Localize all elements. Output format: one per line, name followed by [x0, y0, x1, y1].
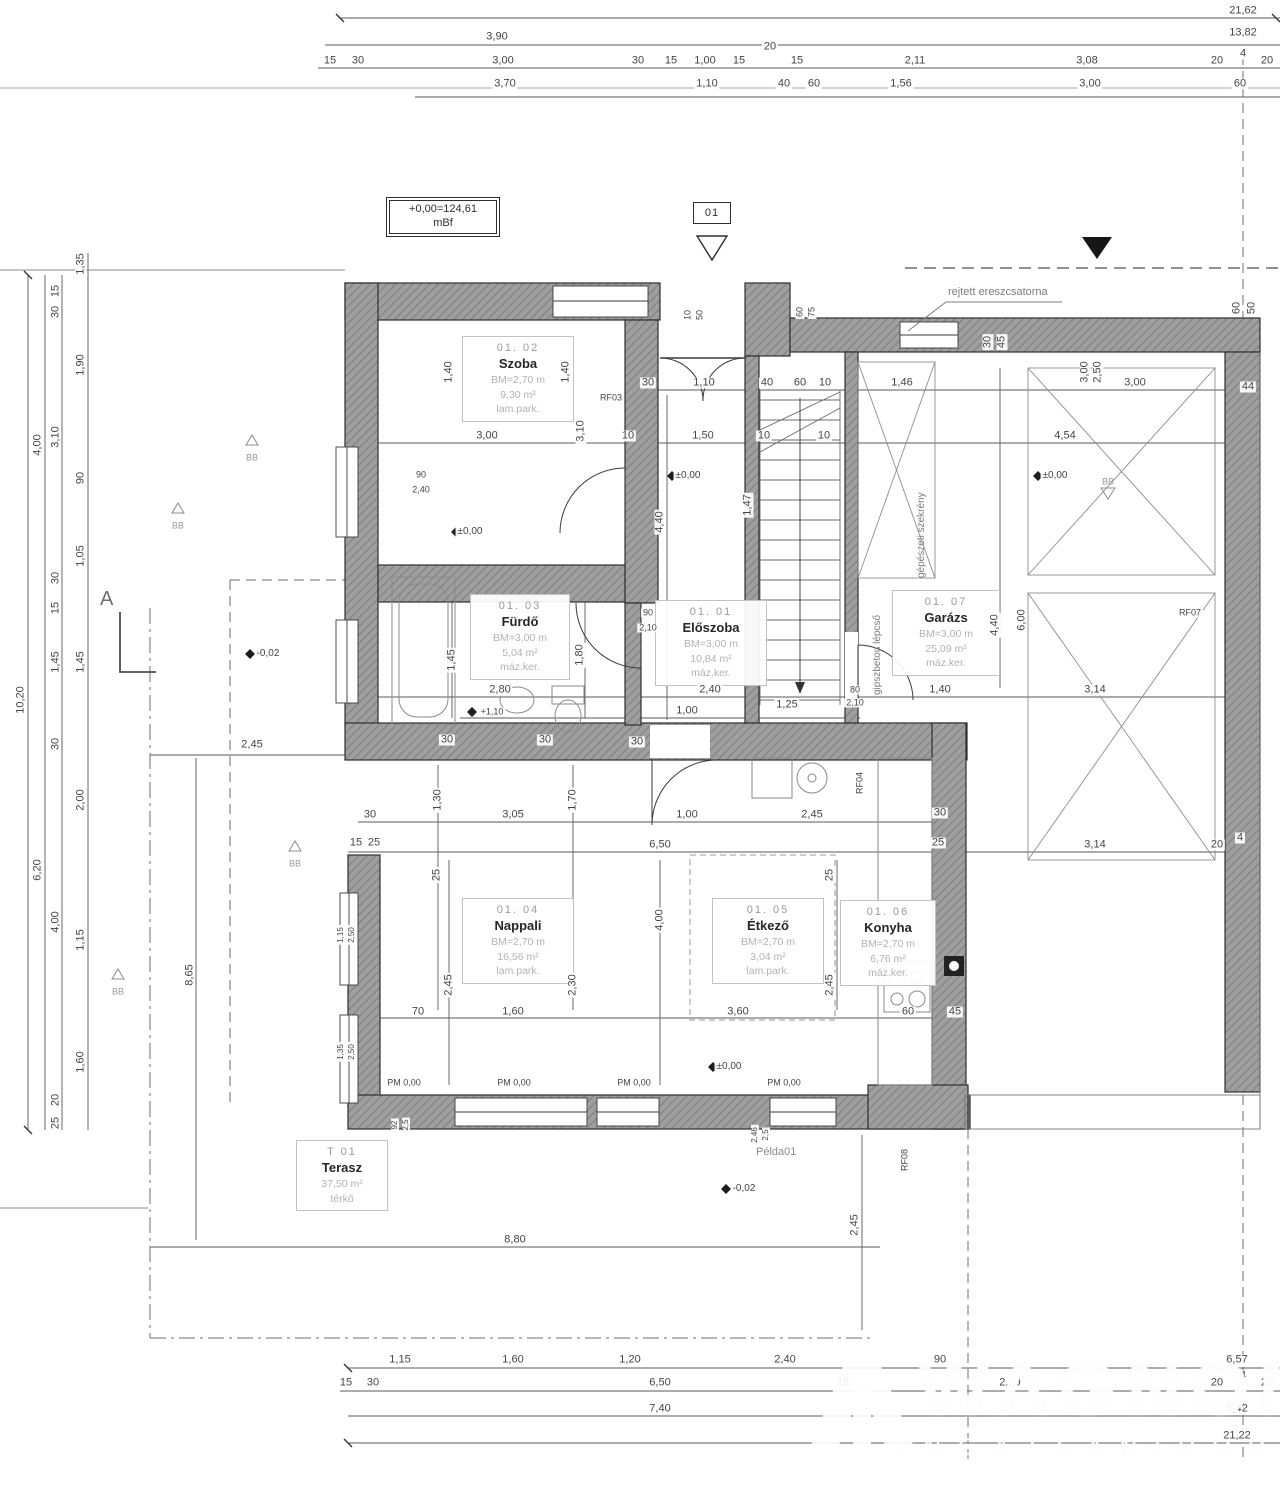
- dimension-label: BB: [287, 860, 303, 869]
- room-number: 01. 01: [660, 606, 762, 618]
- dimension-label: 90: [414, 471, 428, 480]
- room-name: Nappali: [467, 918, 569, 933]
- dimension-label: 60: [1232, 300, 1243, 316]
- section-tag: 01: [693, 202, 731, 224]
- dimension-label: 2,19: [997, 1378, 1022, 1389]
- dimension-label: ±0,00: [674, 471, 703, 481]
- dimension-label: RF04: [856, 770, 865, 796]
- room-name: Garázs: [897, 610, 995, 625]
- dimension-label: 60: [900, 1007, 916, 1018]
- dimension-label: 3,00: [474, 431, 499, 442]
- dimension-label: 60: [792, 378, 808, 389]
- room-area: 10,84 m²: [690, 653, 731, 665]
- room-floor: máz.ker.: [868, 967, 908, 979]
- room-floor: lam.park.: [746, 965, 789, 977]
- dimension-label: PM 0,00: [495, 1079, 533, 1088]
- dimension-label: 10: [816, 431, 832, 442]
- dimension-label: 3,05: [500, 810, 525, 821]
- dimension-label: 1,00: [692, 56, 717, 67]
- room-box-terasz: T 01 Terasz 37,50 m² térkő: [296, 1140, 388, 1211]
- dimension-label: 1,10: [691, 378, 716, 389]
- dimension-label: 15: [51, 283, 62, 299]
- dimension-label: 1,80: [575, 642, 586, 667]
- dimension-label: 1,15: [76, 927, 87, 952]
- dimension-label: 15: [51, 600, 62, 616]
- section-letter: A: [100, 588, 113, 611]
- dimension-label: 60: [806, 79, 822, 90]
- dimension-label: 2,45: [444, 972, 455, 997]
- room-height: BM=2,70 m: [491, 374, 545, 386]
- dimension-label: 25: [930, 838, 946, 849]
- plan-drawing-svg: [0, 0, 1280, 1501]
- room-box-szoba: 01. 02 Szoba BM=2,70 m 9,30 m² lam.park.: [462, 336, 574, 422]
- room-number: 01. 02: [467, 342, 569, 354]
- dimension-label: 20: [762, 42, 778, 53]
- dimension-label: 1,20: [617, 1355, 642, 1366]
- dimension-label: 30: [640, 378, 656, 389]
- dimension-label: 6,57: [1224, 1355, 1249, 1366]
- floor-plan-canvas: 01. 01 Előszoba BM=3,00 m 10,84 m² máz.k…: [0, 0, 1280, 1501]
- room-height: BM=2,70 m: [741, 936, 795, 948]
- dimension-label: 2,5: [762, 1127, 770, 1142]
- dimension-label: 10,20: [16, 684, 27, 716]
- dimension-label: 10: [817, 378, 833, 389]
- dimension-label: BB: [1100, 478, 1116, 487]
- dimension-label: 45: [997, 334, 1008, 350]
- dimension-label: 1,60: [76, 1049, 87, 1074]
- dimension-label: 1,10: [694, 79, 719, 90]
- dimension-label: 3,00: [1122, 378, 1147, 389]
- dimension-label: 4,40: [655, 509, 666, 534]
- room-number: 01. 04: [467, 904, 569, 916]
- dimension-label: 2,10: [637, 624, 659, 633]
- dimension-label: 1,00: [674, 706, 699, 717]
- dimension-label: 21,22: [1221, 1431, 1253, 1442]
- dimension-label: 1,05: [76, 543, 87, 568]
- room-area: 9,30 m²: [500, 389, 536, 401]
- room-number: 01. 07: [897, 596, 995, 608]
- dimension-label: 4,40: [990, 612, 1001, 637]
- dimension-label: +1,10: [479, 708, 506, 717]
- dimension-label: 1,90: [76, 352, 87, 377]
- room-floor: máz.ker.: [691, 667, 731, 679]
- dimension-label: 20: [1209, 1378, 1225, 1389]
- dimension-label: 3,14: [1082, 685, 1107, 696]
- dimension-label: 40: [776, 79, 792, 90]
- dimension-label: 30: [630, 56, 646, 67]
- room-height: BM=3,00 m: [493, 632, 547, 644]
- dimension-label: 1,50: [690, 431, 715, 442]
- sample-note: Példa01: [756, 1146, 796, 1158]
- dimension-label: 3,90: [484, 32, 509, 43]
- dimension-label: 45: [947, 1007, 963, 1018]
- dimension-label: BB: [170, 522, 186, 531]
- dimension-label: 4,54: [1052, 431, 1077, 442]
- dimension-label: 30: [51, 570, 62, 586]
- dimension-label: RF03: [598, 394, 624, 403]
- room-box-garazs: 01. 07 Garázs BM=3,00 m 25,09 m² máz.ker…: [892, 590, 1000, 676]
- dimension-label: 15: [731, 56, 747, 67]
- dimension-label: 50: [696, 308, 705, 322]
- dimension-label: 6,50: [647, 1378, 672, 1389]
- dimension-label: 1,15: [387, 1355, 412, 1366]
- dimension-label: 90: [932, 1355, 948, 1366]
- dimension-label: 30: [350, 56, 366, 67]
- dimension-label: 1,56: [888, 79, 913, 90]
- dimension-label: PM 0,00: [385, 1079, 423, 1088]
- dimension-label: 60: [1232, 79, 1248, 90]
- dimension-label: 20: [1209, 840, 1225, 851]
- room-height: BM=3,00 m: [684, 638, 738, 650]
- dimension-label: 3,08: [1074, 56, 1099, 67]
- dimension-label: 30: [932, 808, 948, 819]
- dimension-label: 2,45: [825, 972, 836, 997]
- room-box-eloszoba: 01. 01 Előszoba BM=3,00 m 10,84 m² máz.k…: [655, 600, 767, 686]
- kitchen-sink: [752, 758, 792, 798]
- dimension-label: 75: [808, 305, 817, 319]
- dimension-label: 15: [322, 56, 338, 67]
- dimension-label: 30: [362, 810, 378, 821]
- dimension-label: 4: [1238, 1371, 1248, 1382]
- dimension-label: 1,70: [568, 787, 579, 812]
- dimension-label: 1,45: [51, 649, 62, 674]
- room-name: Étkező: [717, 918, 819, 933]
- dimension-label: 92: [391, 1119, 399, 1132]
- room-area: 6,76 m²: [870, 953, 906, 965]
- dimension-label: 60: [796, 305, 805, 319]
- room-name: Előszoba: [660, 620, 762, 635]
- dimension-label: 20: [1259, 1378, 1275, 1389]
- toilet: [552, 686, 584, 704]
- dimension-label: 4: [1238, 49, 1248, 60]
- room-box-etkezo: 01. 05 Étkező BM=2,70 m 3,04 m² lam.park…: [712, 898, 824, 984]
- stairs-note: gipszbeton lépcső: [872, 615, 883, 695]
- dimension-label: 21,62: [1227, 6, 1259, 17]
- room-name: Szoba: [467, 356, 569, 371]
- dimension-label: 3,00: [490, 56, 515, 67]
- dimension-label: 2,40: [772, 1355, 797, 1366]
- dimension-label: 40: [759, 378, 775, 389]
- room-box-konyha: 01. 06 Konyha BM=2,70 m 6,76 m² máz.ker.: [840, 900, 936, 986]
- dimension-label: 8,80: [502, 1235, 527, 1246]
- dimension-label: 25: [51, 1115, 62, 1131]
- dimension-label: 30: [537, 735, 553, 746]
- dimension-label: -0,02: [255, 649, 282, 659]
- dimension-label: 1,40: [444, 359, 455, 384]
- dimension-label: 2,5: [402, 1117, 410, 1132]
- level-unit: mBf: [433, 217, 453, 229]
- dimension-label: 2,45: [239, 740, 264, 751]
- dimension-label: 1,35: [76, 251, 87, 276]
- room-name: Fürdő: [475, 614, 565, 629]
- dimension-label: 1,35: [337, 1042, 345, 1062]
- section-marker-triangle: [697, 236, 727, 260]
- dimension-label: PM 0,00: [615, 1079, 653, 1088]
- dimension-label: 2,10: [844, 699, 866, 708]
- dimension-label: 10: [756, 431, 772, 442]
- dimension-label: 90: [641, 609, 655, 618]
- dimension-label: 6,42: [1224, 1404, 1249, 1415]
- dimension-label: 2,40: [697, 685, 722, 696]
- dimension-label: 6,00: [1017, 607, 1028, 632]
- dimension-label: 8,65: [185, 962, 196, 987]
- room-area: 37,50 m²: [321, 1178, 362, 1190]
- room-floor: máz.ker.: [500, 661, 540, 673]
- dimension-label: 15: [338, 1378, 354, 1389]
- dimension-label: 1,60: [500, 1007, 525, 1018]
- dimension-label: 30: [983, 334, 994, 350]
- dimension-label: 7,40: [647, 1404, 672, 1415]
- dimension-label: 44: [1240, 382, 1256, 393]
- room-number: T 01: [301, 1146, 383, 1158]
- dimension-label: 6,20: [33, 857, 44, 882]
- dimension-label: 25: [366, 838, 382, 849]
- dimension-label: 2,11: [903, 56, 928, 67]
- dimension-label: PM 0,00: [765, 1079, 803, 1088]
- room-floor: lam.park.: [496, 965, 539, 977]
- dimension-label: RF07: [1177, 609, 1203, 618]
- dimension-label: 80: [848, 686, 862, 695]
- room-height: BM=2,70 m: [491, 936, 545, 948]
- dimension-label: 13,82: [1227, 28, 1259, 39]
- dimension-label: 50: [1247, 300, 1258, 316]
- room-area: 25,09 m²: [925, 643, 966, 655]
- dimension-label: 15: [835, 1378, 851, 1389]
- dimension-label: 4: [1235, 833, 1245, 844]
- room-area: 16,56 m²: [497, 951, 538, 963]
- dimension-label: 1,00: [674, 810, 699, 821]
- room-box-furdo: 01. 03 Fürdő BM=3,00 m 5,04 m² máz.ker.: [470, 594, 570, 680]
- dimension-label: 1,45: [447, 647, 458, 672]
- dimension-label: 20: [1259, 56, 1275, 67]
- dimension-label: 3,14: [1082, 840, 1107, 851]
- room-area: 3,04 m²: [750, 951, 786, 963]
- dimension-label: 1,46: [889, 378, 914, 389]
- dimension-label: 1,25: [774, 700, 799, 711]
- dimension-label: 15: [663, 56, 679, 67]
- dimension-label: 2,45: [850, 1212, 861, 1237]
- room-box-nappali: 01. 04 Nappali BM=2,70 m 16,56 m² lam.pa…: [462, 898, 574, 984]
- dimension-label: 30: [51, 736, 62, 752]
- dimension-label: BB: [244, 454, 260, 463]
- dimension-label: 4,00: [655, 907, 666, 932]
- dimension-label: 1,15: [337, 925, 345, 945]
- dimension-label: 4,00: [33, 432, 44, 457]
- dimension-label: 1,47: [743, 492, 754, 517]
- dimension-label: 1,45: [76, 649, 87, 674]
- room-number: 01. 03: [475, 600, 565, 612]
- room-name: Konyha: [845, 920, 931, 935]
- dimension-label: 25: [432, 867, 443, 883]
- dimension-label: 2,30: [568, 972, 579, 997]
- closet-note: gépészeti szekrény: [916, 492, 927, 578]
- dimension-label: 1,40: [561, 359, 572, 384]
- room-floor: máz.ker.: [926, 657, 966, 669]
- dimension-label: 15: [348, 838, 364, 849]
- dimension-label: 3,70: [492, 79, 517, 90]
- dimension-label: ±0,00: [1041, 471, 1070, 481]
- dimension-label: 10: [684, 308, 693, 322]
- dimension-label: 4,00: [51, 909, 62, 934]
- dimension-label: 1,40: [927, 685, 952, 696]
- dimension-label: 3,60: [725, 1007, 750, 1018]
- dimension-label: 2,80: [487, 685, 512, 696]
- dimension-label: -0,02: [731, 1184, 758, 1194]
- dimension-label: 10: [620, 431, 636, 442]
- gutter-note: rejtett ereszcsatorna: [948, 286, 1048, 298]
- room-number: 01. 06: [845, 906, 931, 918]
- dimension-label: BB: [110, 988, 126, 997]
- dimension-label: RF08: [901, 1147, 910, 1173]
- dimension-label: 3,00: [1080, 359, 1091, 384]
- room-area: 5,04 m²: [502, 647, 538, 659]
- dimension-label: 2,45: [799, 810, 824, 821]
- dimension-label: 15: [789, 56, 805, 67]
- dimension-label: ±0,00: [456, 527, 485, 537]
- dimension-label: 3,10: [51, 424, 62, 449]
- room-height: BM=2,70 m: [861, 938, 915, 950]
- dimension-label: 3,10: [576, 418, 587, 443]
- dimension-label: 2,46: [751, 1125, 759, 1145]
- level-reference-box: +0,00=124,61 mBf: [386, 197, 500, 237]
- room-number: 01. 05: [717, 904, 819, 916]
- dimension-label: 20: [51, 1092, 62, 1108]
- level-value: +0,00=124,61: [409, 203, 477, 215]
- room-floor: lam.park.: [496, 403, 539, 415]
- room-name: Terasz: [301, 1160, 383, 1175]
- dimension-label: 30: [629, 737, 645, 748]
- dimension-label: 30: [51, 304, 62, 320]
- section-a-arrow: [120, 612, 156, 672]
- dimension-label: 2,50: [1093, 359, 1104, 384]
- dimension-label: 1,60: [500, 1355, 525, 1366]
- dimension-label: 6,50: [647, 840, 672, 851]
- dimension-label: 1,30: [433, 787, 444, 812]
- dimension-label: 2,00: [76, 787, 87, 812]
- dimension-label: 30: [439, 735, 455, 746]
- dimension-label: 25: [825, 867, 836, 883]
- dimension-label: 2,50: [348, 1042, 356, 1062]
- dimension-label: 30: [365, 1378, 381, 1389]
- dimension-label: 3,00: [1077, 79, 1102, 90]
- room-height: BM=3,00 m: [919, 628, 973, 640]
- north-triangle-icon: [1082, 237, 1112, 259]
- dimension-label: 2,50: [348, 925, 356, 945]
- dimension-label: 90: [76, 470, 87, 486]
- dimension-label: 2,40: [410, 486, 432, 495]
- dimension-label: 20: [1209, 56, 1225, 67]
- dimension-label: ±0,00: [715, 1062, 744, 1072]
- room-floor: térkő: [330, 1193, 353, 1205]
- dimension-label: 70: [410, 1007, 426, 1018]
